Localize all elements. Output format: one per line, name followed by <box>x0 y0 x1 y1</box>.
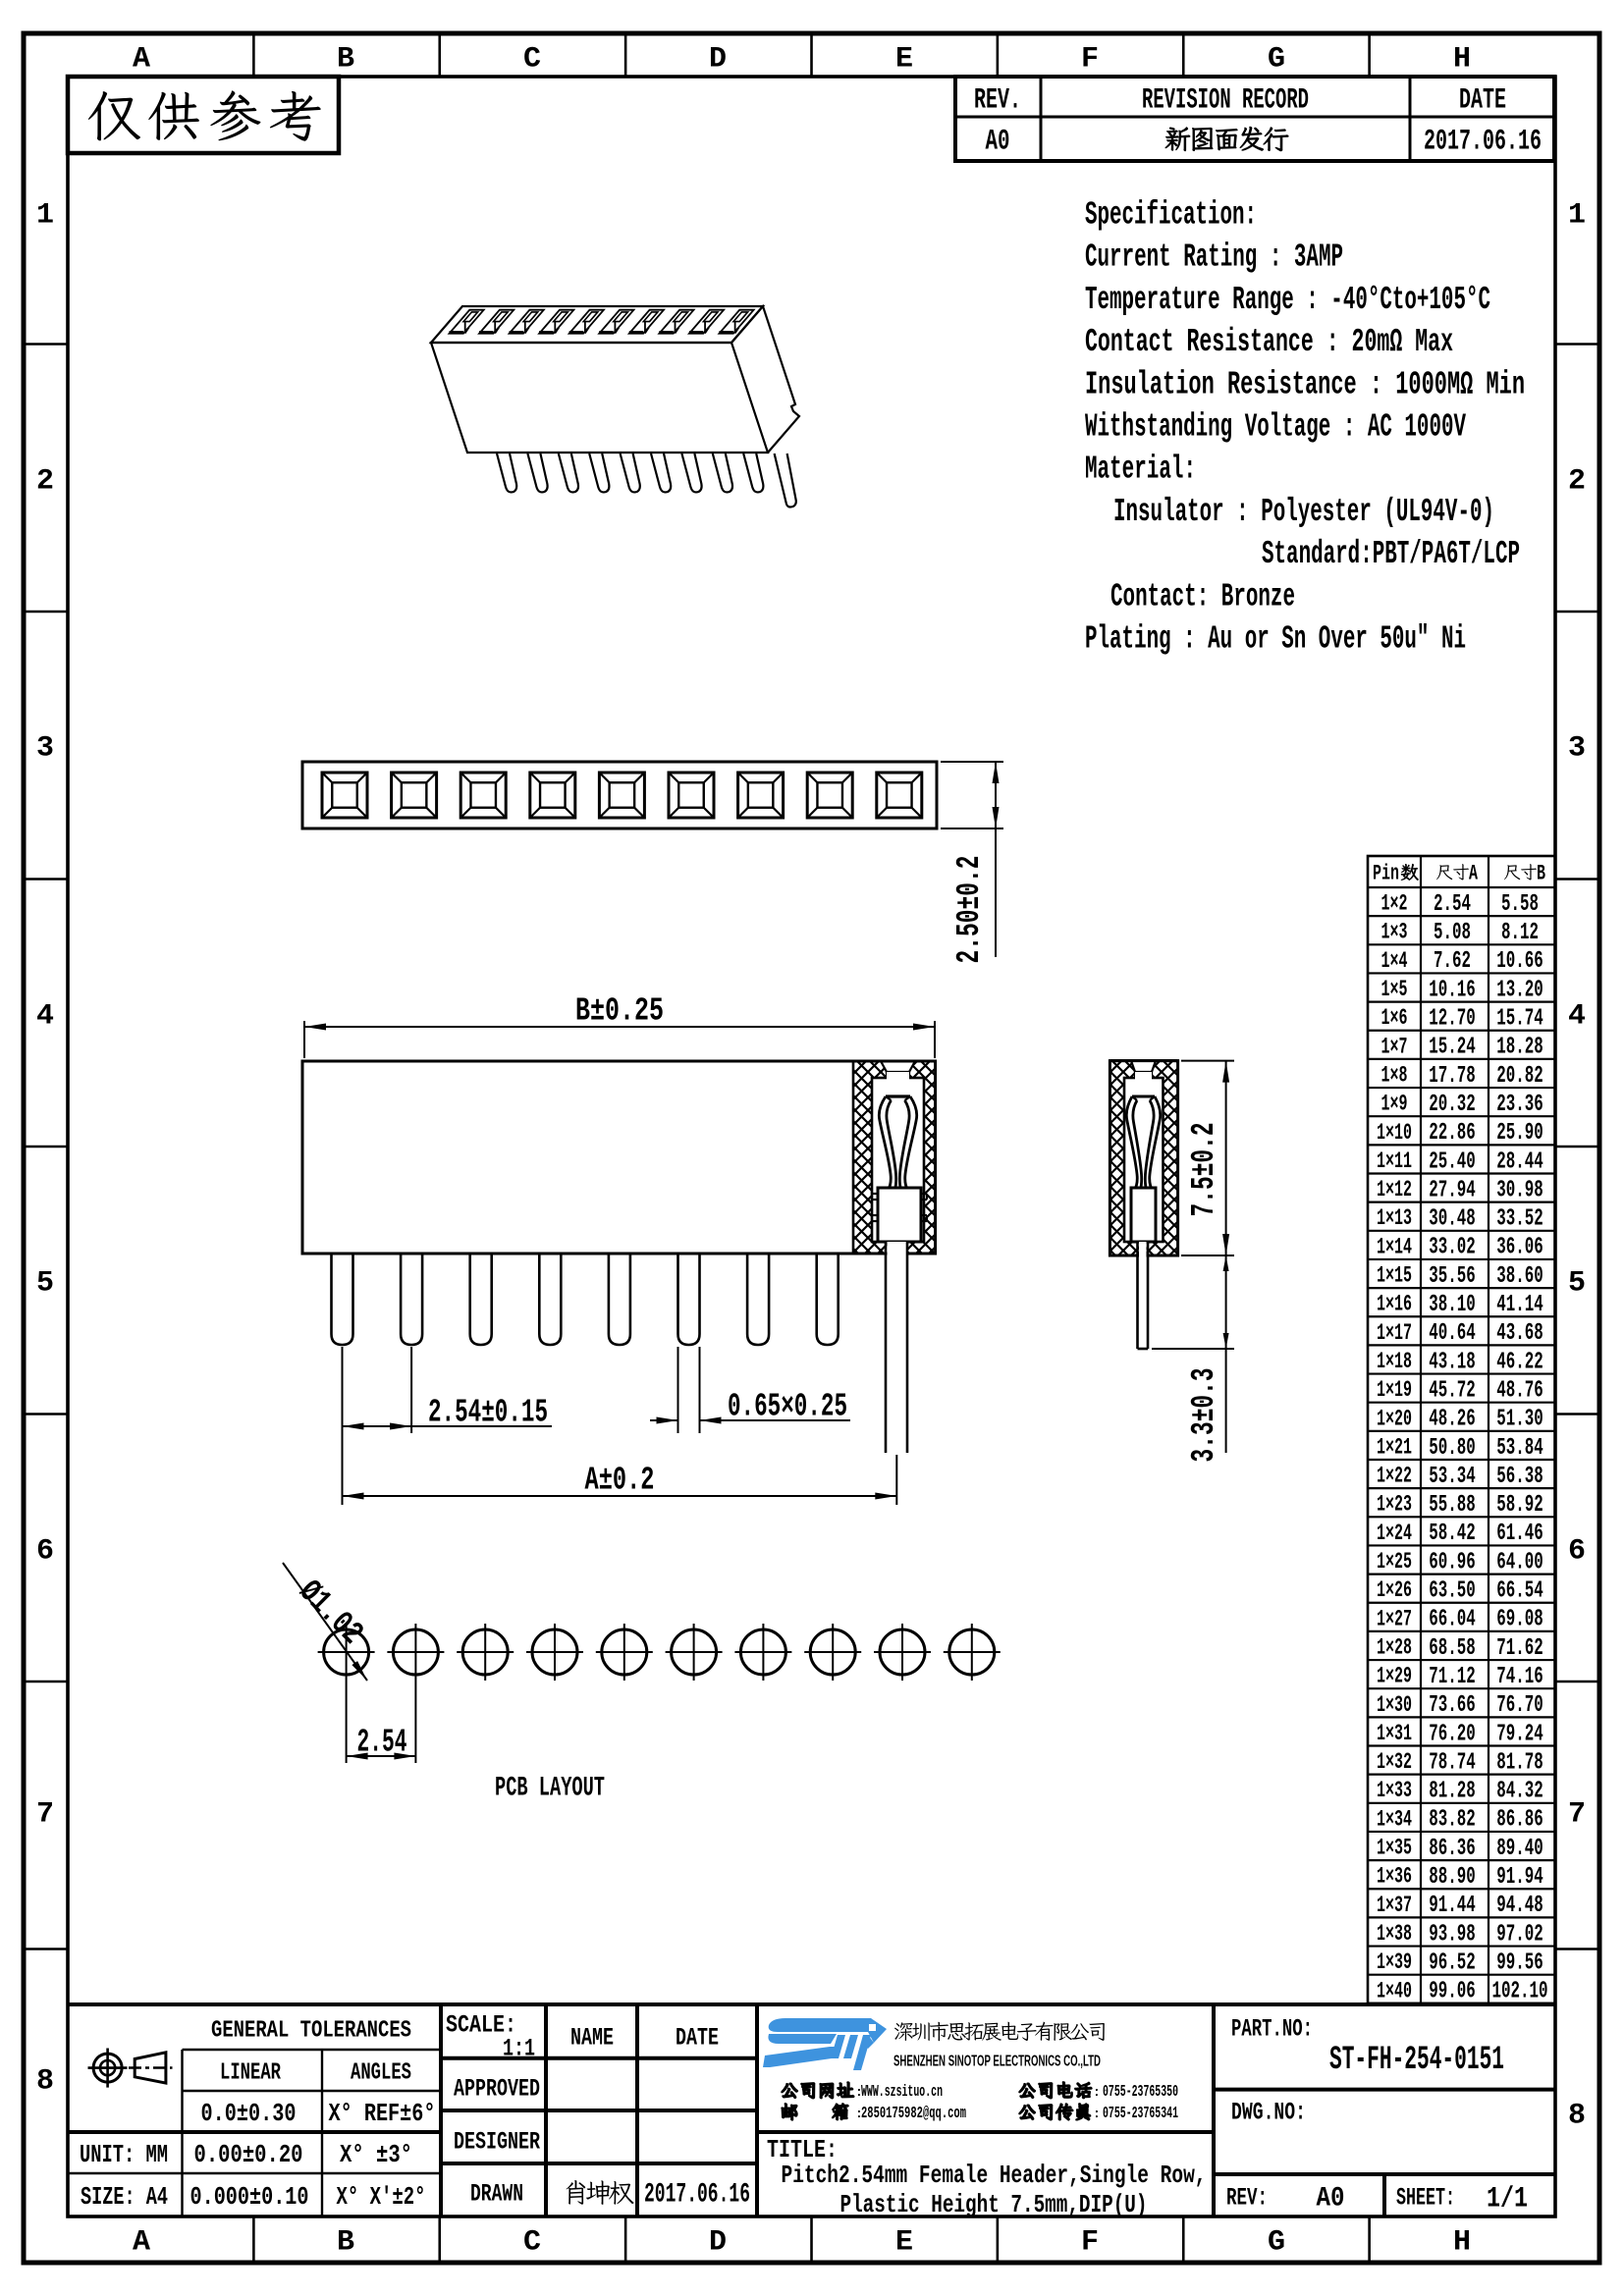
svg-text:1:1: 1:1 <box>503 2035 535 2063</box>
svg-text:83.82: 83.82 <box>1429 1807 1476 1834</box>
svg-text:A: A <box>1469 862 1479 886</box>
svg-text:1×24: 1×24 <box>1377 1521 1412 1546</box>
svg-text:Insulation Resistance : 1000MΩ: Insulation Resistance : 1000MΩ Min <box>1085 366 1525 402</box>
svg-text:SHEET:: SHEET: <box>1396 2184 1455 2213</box>
svg-text:96.52: 96.52 <box>1429 1949 1476 1976</box>
svg-text:0755-23765350: 0755-23765350 <box>1103 2083 1178 2102</box>
svg-text:NAME: NAME <box>570 2024 614 2053</box>
svg-text:1×16: 1×16 <box>1377 1292 1412 1317</box>
svg-text:REV.: REV. <box>974 83 1021 117</box>
svg-text:1×27: 1×27 <box>1377 1606 1412 1631</box>
svg-text:SHENZHEN SINOTOP ELECTRONICS C: SHENZHEN SINOTOP ELECTRONICS CO.,LTD <box>893 2054 1101 2070</box>
svg-text:2850175982@qq.com: 2850175982@qq.com <box>861 2105 966 2123</box>
svg-text:PCB LAYOUT: PCB LAYOUT <box>495 1774 605 1804</box>
svg-text:30.48: 30.48 <box>1429 1206 1476 1233</box>
svg-text:2: 2 <box>36 464 54 498</box>
svg-text:A: A <box>133 42 150 76</box>
svg-text:Material:: Material: <box>1085 452 1196 488</box>
svg-text:61.46: 61.46 <box>1496 1521 1543 1547</box>
svg-text:1×8: 1×8 <box>1381 1062 1408 1088</box>
svg-text:7.62: 7.62 <box>1434 948 1471 975</box>
svg-text:40.64: 40.64 <box>1429 1320 1476 1347</box>
svg-text:8.12: 8.12 <box>1501 920 1539 946</box>
svg-text:Pin: Pin <box>1373 862 1399 886</box>
svg-text:1×34: 1×34 <box>1377 1806 1412 1832</box>
svg-text:22.86: 22.86 <box>1429 1120 1476 1147</box>
svg-text:1×7: 1×7 <box>1381 1034 1408 1059</box>
svg-text:99.56: 99.56 <box>1496 1949 1543 1976</box>
svg-text:Ø1.02: Ø1.02 <box>292 1574 370 1652</box>
svg-text:0.00±0.20: 0.00±0.20 <box>194 2140 303 2169</box>
svg-text:1×19: 1×19 <box>1377 1377 1412 1403</box>
svg-text:3.3±0.3: 3.3±0.3 <box>1186 1367 1222 1462</box>
svg-text:2017.06.16: 2017.06.16 <box>1424 125 1542 158</box>
svg-text:5: 5 <box>36 1266 54 1300</box>
svg-text:69.08: 69.08 <box>1496 1607 1543 1633</box>
svg-text:H: H <box>1453 42 1471 76</box>
svg-text:15.74: 15.74 <box>1496 1006 1543 1033</box>
svg-text:WWW.szsituo.cn: WWW.szsituo.cn <box>861 2083 943 2102</box>
svg-text:B: B <box>337 42 354 76</box>
svg-text:63.50: 63.50 <box>1429 1578 1476 1605</box>
svg-text:1×35: 1×35 <box>1377 1836 1412 1861</box>
svg-text:2.54: 2.54 <box>357 1724 407 1760</box>
svg-text:DWG.NO:: DWG.NO: <box>1231 2099 1306 2127</box>
svg-text:6: 6 <box>1568 1534 1586 1568</box>
svg-text:1×9: 1×9 <box>1381 1092 1408 1117</box>
svg-text:18.28: 18.28 <box>1496 1035 1543 1061</box>
svg-text:A±0.2: A±0.2 <box>585 1462 655 1498</box>
svg-text:4: 4 <box>36 999 54 1033</box>
svg-text:1×6: 1×6 <box>1381 1005 1408 1031</box>
svg-text:73.66: 73.66 <box>1429 1692 1476 1719</box>
svg-text:H: H <box>1453 2225 1471 2259</box>
svg-text:1×37: 1×37 <box>1377 1893 1412 1918</box>
svg-text:2.54: 2.54 <box>1434 891 1471 918</box>
svg-text:1×11: 1×11 <box>1377 1148 1412 1174</box>
svg-text:86.86: 86.86 <box>1496 1807 1543 1834</box>
svg-text:DESIGNER: DESIGNER <box>454 2128 540 2157</box>
svg-text:F: F <box>1081 2225 1099 2259</box>
svg-text:Specification:: Specification: <box>1085 196 1257 233</box>
svg-text:12.70: 12.70 <box>1429 1006 1476 1033</box>
svg-text:35.56: 35.56 <box>1429 1263 1476 1290</box>
svg-text:91.44: 91.44 <box>1429 1893 1476 1919</box>
svg-text:1: 1 <box>1568 198 1586 232</box>
svg-text:1×12: 1×12 <box>1377 1177 1412 1202</box>
svg-text:1×20: 1×20 <box>1377 1406 1412 1431</box>
svg-text:Insulator : Polyester (UL94V-0: Insulator : Polyester (UL94V-0) <box>1113 494 1494 530</box>
svg-text:1×26: 1×26 <box>1377 1577 1412 1603</box>
svg-text:G: G <box>1268 42 1285 76</box>
svg-text:38.60: 38.60 <box>1496 1263 1543 1290</box>
svg-text:7: 7 <box>36 1797 54 1831</box>
svg-text:1×14: 1×14 <box>1377 1234 1412 1259</box>
svg-text:SIZE: A4: SIZE: A4 <box>81 2182 168 2212</box>
svg-text:1×10: 1×10 <box>1377 1120 1412 1146</box>
svg-text:Temperature Range : -40°Cto+10: Temperature Range : -40°Cto+105°C <box>1085 282 1490 318</box>
svg-text:0.65×0.25: 0.65×0.25 <box>728 1388 847 1424</box>
svg-text:D: D <box>709 2225 727 2259</box>
svg-text:DATE: DATE <box>676 2024 719 2053</box>
svg-text:1×33: 1×33 <box>1377 1778 1412 1803</box>
svg-text:46.22: 46.22 <box>1496 1349 1543 1375</box>
svg-text:94.48: 94.48 <box>1496 1893 1543 1919</box>
svg-text:93.98: 93.98 <box>1429 1921 1476 1948</box>
svg-text:58.42: 58.42 <box>1429 1521 1476 1547</box>
svg-text:43.68: 43.68 <box>1496 1320 1543 1347</box>
svg-text:UNIT: MM: UNIT: MM <box>80 2140 168 2169</box>
svg-text:28.44: 28.44 <box>1496 1148 1543 1175</box>
svg-text:1×2: 1×2 <box>1381 891 1408 917</box>
svg-text:C: C <box>523 2225 541 2259</box>
svg-text:1×38: 1×38 <box>1377 1921 1412 1947</box>
svg-text:5: 5 <box>1568 1266 1586 1300</box>
svg-text::: : <box>1093 2107 1101 2121</box>
svg-text:F: F <box>1081 42 1099 76</box>
svg-text:5.58: 5.58 <box>1501 891 1539 918</box>
svg-text:2: 2 <box>1568 464 1586 498</box>
svg-text:Standard:PBT/PA6T/LCP: Standard:PBT/PA6T/LCP <box>1262 536 1520 572</box>
svg-text:3: 3 <box>1568 731 1586 765</box>
svg-text:1×28: 1×28 <box>1377 1634 1412 1660</box>
svg-text:13.20: 13.20 <box>1496 977 1543 1003</box>
svg-text:76.70: 76.70 <box>1496 1692 1543 1719</box>
svg-text:Pitch2.54mm Female Header,Sing: Pitch2.54mm Female Header,Single Row, <box>782 2161 1207 2190</box>
svg-text:2.50±0.2: 2.50±0.2 <box>951 855 988 963</box>
svg-text:76.20: 76.20 <box>1429 1721 1476 1747</box>
svg-text:71.12: 71.12 <box>1429 1664 1476 1690</box>
svg-text:1×29: 1×29 <box>1377 1664 1412 1689</box>
svg-text:91.94: 91.94 <box>1496 1864 1543 1891</box>
svg-text:43.18: 43.18 <box>1429 1349 1476 1375</box>
svg-text:2017.06.16: 2017.06.16 <box>644 2180 750 2211</box>
svg-text::: : <box>1093 2085 1101 2100</box>
svg-text:7: 7 <box>1568 1797 1586 1831</box>
svg-text:ST-FH-254-0151: ST-FH-254-0151 <box>1329 2042 1504 2079</box>
svg-text:33.02: 33.02 <box>1429 1235 1476 1261</box>
svg-text:1×36: 1×36 <box>1377 1864 1412 1890</box>
svg-text:A: A <box>133 2225 150 2259</box>
svg-text:REV:: REV: <box>1226 2184 1268 2213</box>
svg-text:66.54: 66.54 <box>1496 1578 1543 1605</box>
svg-text:1×23: 1×23 <box>1377 1492 1412 1518</box>
svg-text:25.40: 25.40 <box>1429 1148 1476 1175</box>
svg-text:B±0.25: B±0.25 <box>575 992 664 1029</box>
svg-text:LINEAR: LINEAR <box>220 2059 281 2086</box>
svg-text:41.14: 41.14 <box>1496 1292 1543 1318</box>
svg-text:64.00: 64.00 <box>1496 1549 1543 1575</box>
svg-text:1×5: 1×5 <box>1381 977 1408 1002</box>
svg-text:53.84: 53.84 <box>1496 1435 1543 1462</box>
svg-text:50.80: 50.80 <box>1429 1435 1476 1462</box>
svg-text:REVISION RECORD: REVISION RECORD <box>1142 83 1309 117</box>
svg-text:Plastic Height 7.5mm,DIP(U): Plastic Height 7.5mm,DIP(U) <box>840 2190 1148 2219</box>
svg-text:0.0±0.30: 0.0±0.30 <box>201 2099 297 2128</box>
svg-text:8: 8 <box>1568 2099 1586 2132</box>
svg-text:56.38: 56.38 <box>1496 1464 1543 1490</box>
svg-text:D: D <box>709 42 727 76</box>
svg-text:A0: A0 <box>986 125 1010 158</box>
svg-text:8: 8 <box>36 2064 54 2098</box>
svg-text:ANGLES: ANGLES <box>351 2059 411 2086</box>
svg-text:20.82: 20.82 <box>1496 1063 1543 1090</box>
svg-text:E: E <box>895 42 913 76</box>
svg-text:Withstanding Voltage : AC 1000: Withstanding Voltage : AC 1000V <box>1085 408 1466 445</box>
svg-text:66.04: 66.04 <box>1429 1607 1476 1633</box>
svg-text:3: 3 <box>36 731 54 765</box>
svg-text:78.74: 78.74 <box>1429 1749 1476 1776</box>
svg-text:GENERAL TOLERANCES: GENERAL TOLERANCES <box>211 2017 411 2044</box>
svg-text:1×15: 1×15 <box>1377 1263 1412 1289</box>
svg-text:C: C <box>523 42 541 76</box>
svg-text:1×21: 1×21 <box>1377 1434 1412 1460</box>
svg-text:97.02: 97.02 <box>1496 1921 1543 1948</box>
svg-text:48.76: 48.76 <box>1496 1377 1543 1404</box>
svg-text:4: 4 <box>1568 999 1586 1033</box>
svg-text:1×40: 1×40 <box>1377 1978 1412 2003</box>
svg-text:1×25: 1×25 <box>1377 1549 1412 1575</box>
svg-text:45.72: 45.72 <box>1429 1377 1476 1404</box>
svg-text:36.06: 36.06 <box>1496 1235 1543 1261</box>
svg-text:51.30: 51.30 <box>1496 1407 1543 1433</box>
svg-text:30.98: 30.98 <box>1496 1177 1543 1203</box>
svg-text:E: E <box>895 2225 913 2259</box>
svg-text:88.90: 88.90 <box>1429 1864 1476 1891</box>
svg-text:1×17: 1×17 <box>1377 1320 1412 1346</box>
svg-text:20.32: 20.32 <box>1429 1092 1476 1118</box>
svg-text:Contact: Bronze: Contact: Bronze <box>1110 578 1295 614</box>
svg-text:Plating : Au or Sn Over 50u″ N: Plating : Au or Sn Over 50u″ Ni <box>1085 620 1466 657</box>
svg-text:68.58: 68.58 <box>1429 1635 1476 1662</box>
svg-text:1: 1 <box>36 198 54 232</box>
svg-text:27.94: 27.94 <box>1429 1177 1476 1203</box>
svg-text:55.88: 55.88 <box>1429 1492 1476 1519</box>
svg-text:1×4: 1×4 <box>1381 948 1408 974</box>
svg-text:10.66: 10.66 <box>1496 948 1543 975</box>
svg-text:APPROVED: APPROVED <box>454 2075 540 2104</box>
svg-text:84.32: 84.32 <box>1496 1779 1543 1805</box>
svg-text:25.90: 25.90 <box>1496 1120 1543 1147</box>
svg-text:86.36: 86.36 <box>1429 1836 1476 1862</box>
svg-text:102.10: 102.10 <box>1492 1979 1548 2005</box>
svg-text:A0: A0 <box>1317 2184 1345 2215</box>
svg-text:17.78: 17.78 <box>1429 1063 1476 1090</box>
svg-text:X° X'±2°: X° X'±2° <box>337 2182 426 2212</box>
svg-text:0.000±0.10: 0.000±0.10 <box>190 2182 309 2212</box>
svg-text:1×32: 1×32 <box>1377 1749 1412 1775</box>
svg-text:10.16: 10.16 <box>1429 977 1476 1003</box>
svg-text:38.10: 38.10 <box>1429 1292 1476 1318</box>
svg-text:G: G <box>1268 2225 1285 2259</box>
svg-text:5.08: 5.08 <box>1434 920 1471 946</box>
svg-text:Current Rating : 3AMP: Current Rating : 3AMP <box>1085 240 1343 276</box>
svg-text:1×22: 1×22 <box>1377 1464 1412 1489</box>
svg-text:74.16: 74.16 <box>1496 1664 1543 1690</box>
svg-text:58.92: 58.92 <box>1496 1492 1543 1519</box>
svg-text:15.24: 15.24 <box>1429 1035 1476 1061</box>
svg-text:1×30: 1×30 <box>1377 1692 1412 1718</box>
svg-text:1×13: 1×13 <box>1377 1205 1412 1231</box>
svg-text:89.40: 89.40 <box>1496 1836 1543 1862</box>
svg-text:DATE: DATE <box>1459 83 1506 117</box>
svg-text:99.06: 99.06 <box>1429 1979 1476 2005</box>
svg-text:PART.NO:: PART.NO: <box>1231 2015 1313 2044</box>
svg-text:7.5±0.2: 7.5±0.2 <box>1186 1122 1222 1216</box>
svg-text:81.28: 81.28 <box>1429 1779 1476 1805</box>
svg-text:B: B <box>337 2225 354 2259</box>
svg-text:2.54±0.15: 2.54±0.15 <box>428 1394 548 1430</box>
svg-text:DRAWN: DRAWN <box>470 2180 523 2209</box>
svg-text:X° REF±6°: X° REF±6° <box>329 2099 436 2128</box>
svg-text:1×3: 1×3 <box>1381 920 1408 945</box>
svg-text:6: 6 <box>36 1534 54 1568</box>
svg-text:23.36: 23.36 <box>1496 1092 1543 1118</box>
svg-text:48.26: 48.26 <box>1429 1407 1476 1433</box>
svg-text:B: B <box>1537 862 1545 886</box>
svg-text:81.78: 81.78 <box>1496 1749 1543 1776</box>
svg-text:53.34: 53.34 <box>1429 1464 1476 1490</box>
svg-text:1/1: 1/1 <box>1487 2182 1528 2216</box>
svg-text:0755-23765341: 0755-23765341 <box>1103 2105 1178 2123</box>
svg-text:Contact Resistance : 20mΩ Max: Contact Resistance : 20mΩ Max <box>1085 324 1453 360</box>
svg-text:79.24: 79.24 <box>1496 1721 1543 1747</box>
svg-text:33.52: 33.52 <box>1496 1206 1543 1233</box>
svg-text:60.96: 60.96 <box>1429 1549 1476 1575</box>
svg-text:1×31: 1×31 <box>1377 1721 1412 1746</box>
svg-text:1×39: 1×39 <box>1377 1949 1412 1975</box>
svg-text:71.62: 71.62 <box>1496 1635 1543 1662</box>
svg-text:1×18: 1×18 <box>1377 1349 1412 1374</box>
svg-text:X° ±3°: X° ±3° <box>340 2140 412 2169</box>
